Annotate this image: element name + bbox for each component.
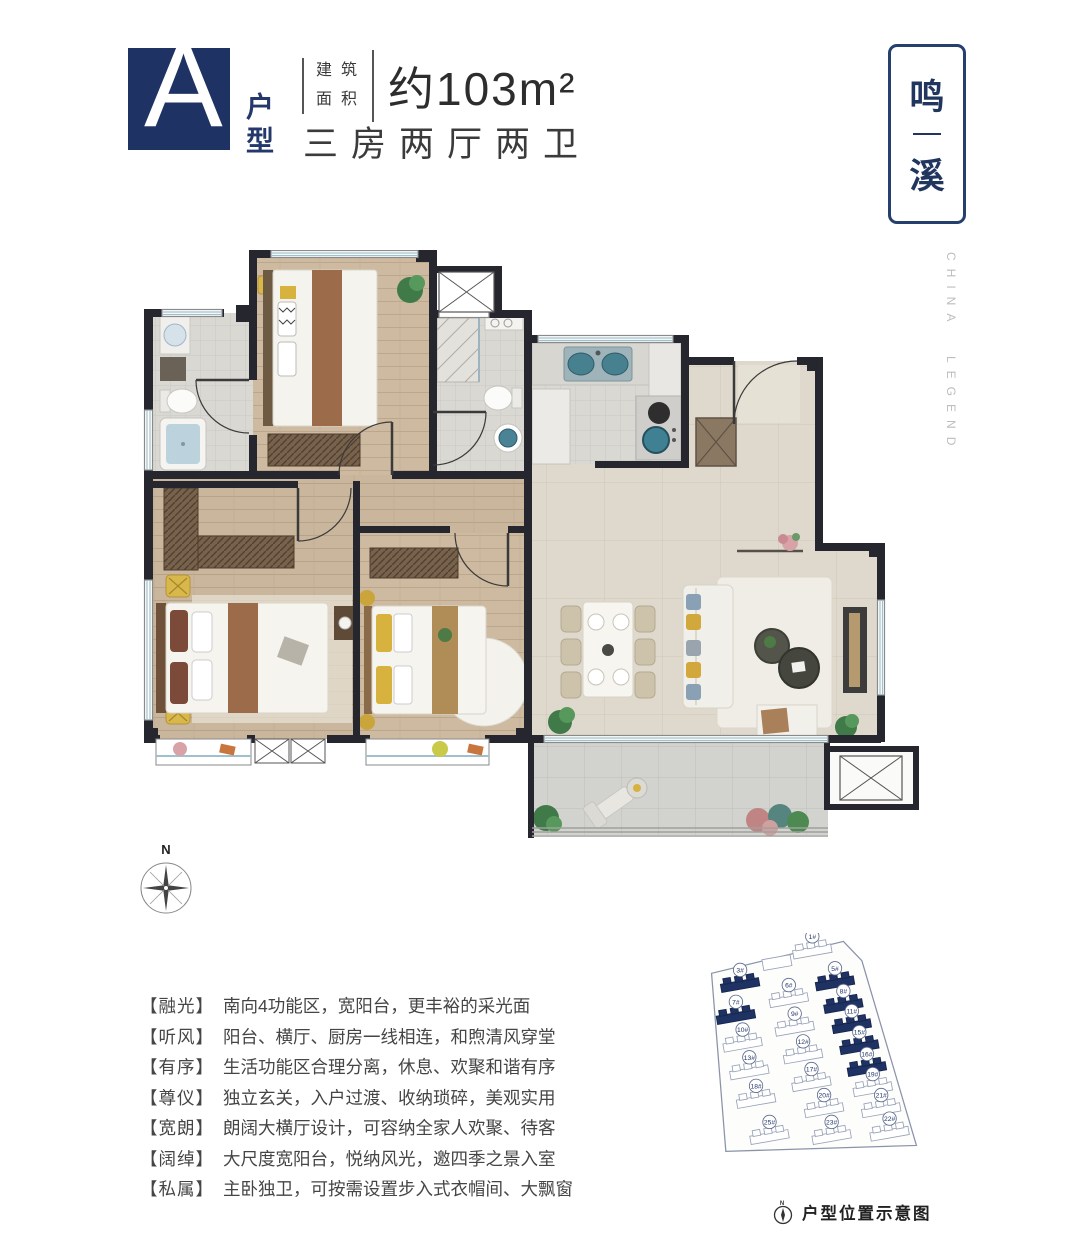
feature-item: 【听风】阳台、横厅、厨房一线相连，和煦清风穿堂: [140, 1022, 573, 1053]
feature-item: 【私属】主卧独卫，可按需设置步入式衣帽间、大飘窗: [140, 1174, 573, 1205]
siteplan-caption: N 户型位置示意图: [772, 1199, 932, 1225]
svg-text:6#: 6#: [785, 983, 793, 990]
svg-text:23#: 23#: [826, 1119, 837, 1126]
area-block: 建筑 面积 约103m²: [302, 50, 576, 122]
compass-label: N: [161, 842, 170, 857]
feature-item: 【阔绰】大尺度宽阳台，悦纳风光，邀四季之景入室: [140, 1144, 573, 1175]
feature-item: 【融光】南向4功能区，宽阳台，更丰裕的采光面: [140, 991, 573, 1022]
svg-text:19#: 19#: [867, 1072, 878, 1079]
area-value: 约103m²: [388, 53, 576, 119]
divider: [913, 133, 941, 135]
floorplan-poster: A 户型 建筑 面积 约103m² 三房两厅两卫 鸣 溪 CHINA LEGEN…: [0, 0, 1079, 1243]
svg-text:12#: 12#: [797, 1039, 808, 1046]
divider: [372, 50, 374, 122]
feature-item: 【尊仪】独立玄关，入户过渡、收纳琐碎，美观实用: [140, 1083, 573, 1114]
layout-text: 三房两厅两卫: [303, 116, 591, 167]
svg-text:10#: 10#: [737, 1027, 748, 1034]
mini-compass-icon: N: [772, 1199, 794, 1225]
svg-text:15#: 15#: [854, 1030, 865, 1037]
divider: [302, 58, 304, 114]
feature-item: 【有序】生活功能区合理分离，休息、欢聚和谐有序: [140, 1052, 573, 1083]
svg-text:13#: 13#: [744, 1055, 755, 1062]
svg-text:1#: 1#: [809, 934, 817, 941]
north-compass: N: [138, 840, 194, 924]
floorplan-drawing: [140, 250, 920, 850]
siteplan-map: 1#3#5#6#7#8#9#10#11#12#13#15#16#17#18#19…: [688, 933, 940, 1195]
unit-badge: A: [128, 48, 230, 150]
svg-text:20#: 20#: [818, 1093, 829, 1100]
project-name-box: 鸣 溪: [888, 44, 966, 224]
svg-text:25#: 25#: [764, 1119, 775, 1126]
svg-text:11#: 11#: [846, 1009, 857, 1016]
area-label: 建筑 面积: [316, 57, 366, 115]
unit-letter: A: [144, 22, 223, 152]
svg-text:18#: 18#: [750, 1083, 761, 1090]
svg-text:7#: 7#: [732, 999, 740, 1006]
svg-text:8#: 8#: [840, 988, 848, 995]
feature-list: 【融光】南向4功能区，宽阳台，更丰裕的采光面 【听风】阳台、横厅、厨房一线相连，…: [140, 991, 573, 1205]
svg-text:9#: 9#: [791, 1011, 799, 1018]
svg-text:21#: 21#: [876, 1093, 887, 1100]
brand-side-text: CHINA LEGEND: [944, 252, 958, 492]
svg-text:16#: 16#: [861, 1051, 872, 1058]
unit-type-label: 户型: [238, 92, 278, 160]
svg-text:17#: 17#: [806, 1067, 817, 1074]
svg-text:22#: 22#: [884, 1116, 895, 1123]
feature-item: 【宽朗】朗阔大横厅设计，可容纳全家人欢聚、待客: [140, 1113, 573, 1144]
svg-text:3#: 3#: [736, 967, 744, 974]
svg-text:5#: 5#: [831, 966, 839, 973]
